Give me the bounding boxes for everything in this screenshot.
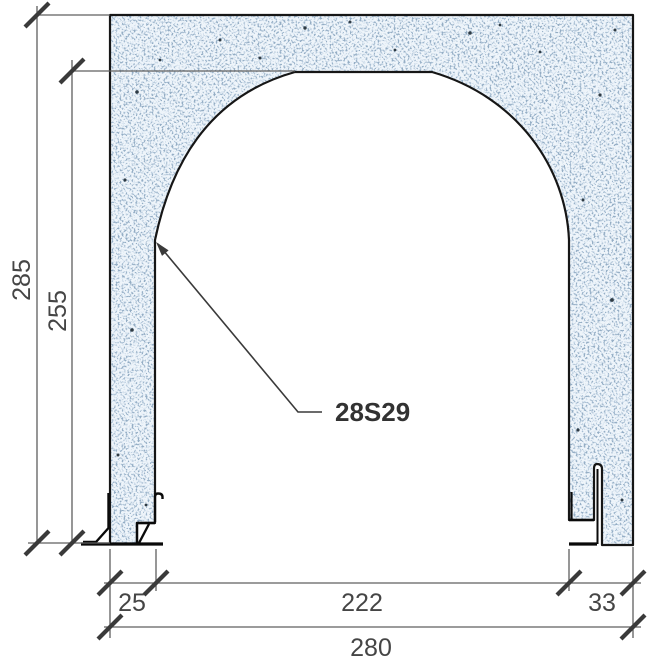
- overall-width-label: 280: [350, 634, 392, 662]
- callout-leader: [156, 242, 322, 412]
- drawing-svg: 285 255 25 222 33 280 28S29: [0, 0, 651, 663]
- overall-height-label: 285: [8, 259, 36, 301]
- left-outer-profile: [83, 493, 109, 542]
- left-diagonal-brace: [139, 524, 149, 543]
- frame-profiles: [81, 469, 598, 544]
- technical-drawing-section: 285 255 25 222 33 280 28S29: [0, 0, 651, 663]
- right-jamb-width-label: 33: [588, 589, 616, 617]
- dimension-labels: 285 255 25 222 33 280 28S29: [8, 259, 616, 662]
- left-jamb-width-label: 25: [118, 589, 146, 617]
- callout-label: 28S29: [335, 397, 410, 427]
- opening-width-label: 222: [341, 589, 383, 617]
- left-inner-profile: [155, 494, 163, 523]
- concrete-section: [100, 5, 645, 555]
- opening-height-label: 255: [44, 290, 72, 332]
